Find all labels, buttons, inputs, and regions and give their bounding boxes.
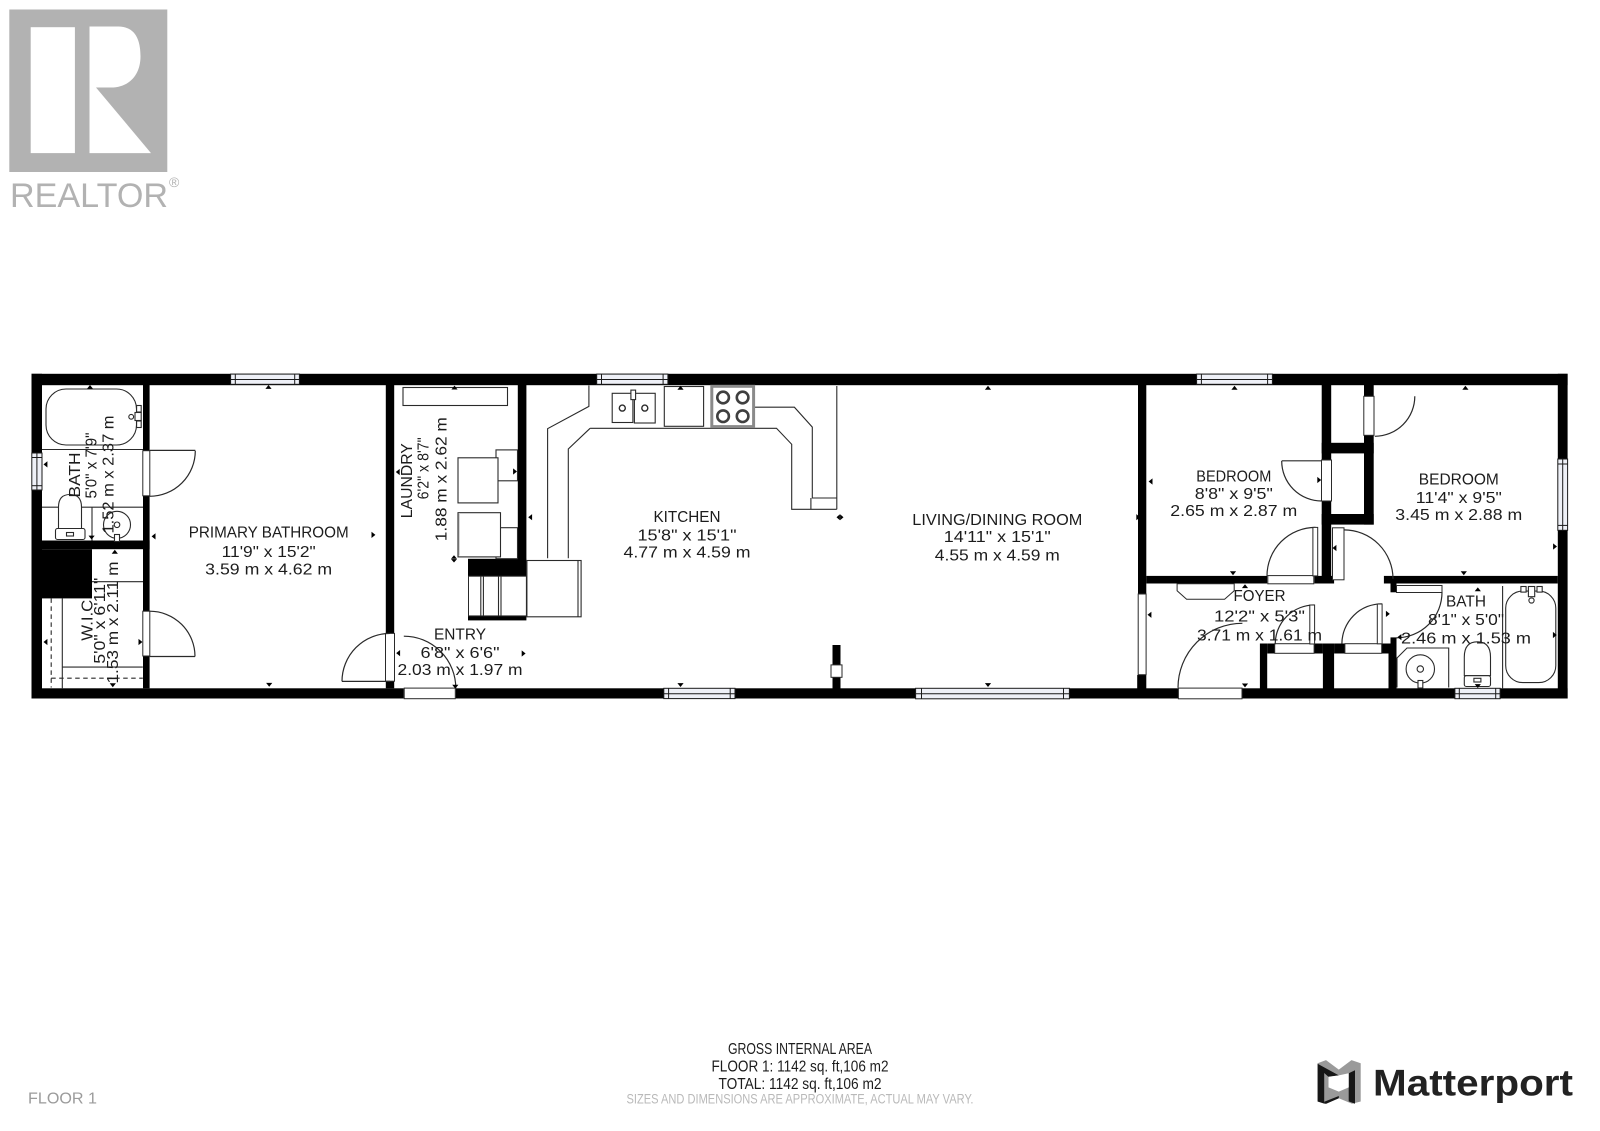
svg-text:KITCHEN: KITCHEN: [654, 509, 721, 526]
svg-text:®: ®: [169, 174, 180, 190]
svg-text:3.45 m x 2.88 m: 3.45 m x 2.88 m: [1395, 507, 1522, 524]
svg-text:1.53 m x 2.11 m: 1.53 m x 2.11 m: [105, 562, 122, 684]
svg-text:BATH: BATH: [1446, 594, 1486, 611]
svg-text:15'8" x 15'1": 15'8" x 15'1": [638, 528, 737, 545]
svg-text:SIZES AND DIMENSIONS ARE APPRO: SIZES AND DIMENSIONS ARE APPROXIMATE, AC…: [627, 1092, 974, 1107]
svg-text:3.59 m x 4.62 m: 3.59 m x 4.62 m: [205, 562, 332, 579]
svg-text:4.55 m x 4.59 m: 4.55 m x 4.59 m: [935, 548, 1060, 565]
svg-text:6'8" x 6'6": 6'8" x 6'6": [421, 645, 500, 662]
svg-text:2.46 m x 1.53 m: 2.46 m x 1.53 m: [1401, 631, 1531, 648]
svg-text:3.71 m x 1.61 m: 3.71 m x 1.61 m: [1197, 628, 1322, 645]
svg-text:6'2" x 8'7": 6'2" x 8'7": [416, 437, 433, 499]
svg-text:14'11" x 15'1": 14'11" x 15'1": [944, 529, 1051, 546]
svg-text:FLOOR 1: FLOOR 1: [28, 1091, 97, 1108]
svg-text:8'8" x 9'5": 8'8" x 9'5": [1195, 486, 1273, 503]
svg-text:TOTAL: 1142 sq. ft,106 m2: TOTAL: 1142 sq. ft,106 m2: [719, 1076, 882, 1093]
svg-text:11'9" x 15'2": 11'9" x 15'2": [222, 544, 316, 561]
svg-text:12'2" x 5'3": 12'2" x 5'3": [1214, 609, 1305, 626]
svg-text:BATH: BATH: [67, 453, 84, 498]
svg-text:GROSS INTERNAL AREA: GROSS INTERNAL AREA: [728, 1041, 873, 1058]
svg-text:BEDROOM: BEDROOM: [1419, 472, 1499, 489]
svg-text:LIVING/DINING ROOM: LIVING/DINING ROOM: [912, 512, 1082, 529]
svg-text:1.88 m x 2.62 m: 1.88 m x 2.62 m: [434, 417, 451, 541]
svg-text:REALTOR: REALTOR: [10, 177, 168, 215]
svg-text:1.52 m x 2.37 m: 1.52 m x 2.37 m: [101, 416, 118, 534]
svg-text:LAUNDRY: LAUNDRY: [399, 443, 416, 518]
svg-text:PRIMARY BATHROOM: PRIMARY BATHROOM: [189, 525, 349, 542]
svg-text:FLOOR 1: 1142 sq. ft,106 m2: FLOOR 1: 1142 sq. ft,106 m2: [712, 1059, 889, 1076]
svg-text:8'1" x 5'0": 8'1" x 5'0": [1428, 612, 1504, 629]
svg-text:BEDROOM: BEDROOM: [1196, 469, 1271, 486]
svg-text:FOYER: FOYER: [1234, 588, 1286, 605]
svg-text:ENTRY: ENTRY: [434, 627, 486, 644]
svg-text:Matterport: Matterport: [1373, 1063, 1573, 1104]
svg-text:5'0" x 7'9": 5'0" x 7'9": [84, 433, 101, 499]
svg-text:11'4" x 9'5": 11'4" x 9'5": [1416, 490, 1502, 507]
svg-text:2.65 m x 2.87 m: 2.65 m x 2.87 m: [1170, 503, 1297, 520]
svg-text:2.03 m x 1.97 m: 2.03 m x 1.97 m: [398, 662, 523, 679]
svg-text:4.77 m x 4.59 m: 4.77 m x 4.59 m: [624, 545, 751, 562]
